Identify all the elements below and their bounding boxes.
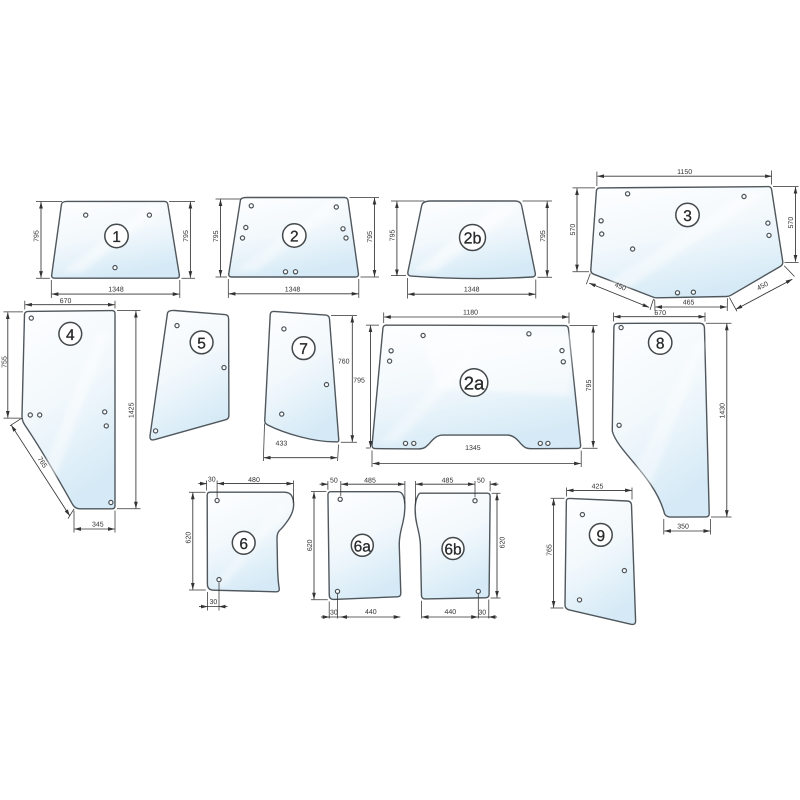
svg-text:50: 50 (330, 477, 338, 484)
svg-text:1348: 1348 (464, 287, 480, 294)
svg-text:1180: 1180 (463, 309, 478, 316)
svg-text:795: 795 (586, 380, 593, 392)
svg-text:570: 570 (788, 217, 795, 229)
svg-text:620: 620 (307, 539, 314, 551)
svg-text:2a: 2a (464, 373, 485, 394)
svg-text:795: 795 (183, 230, 190, 242)
svg-text:6a: 6a (354, 538, 372, 555)
svg-text:1430: 1430 (720, 403, 727, 419)
svg-text:795: 795 (353, 377, 365, 384)
svg-text:433: 433 (276, 441, 288, 448)
svg-text:6: 6 (239, 536, 248, 553)
svg-text:30: 30 (210, 599, 218, 606)
svg-text:1345: 1345 (465, 445, 481, 452)
svg-text:450: 450 (756, 281, 770, 293)
svg-text:620: 620 (499, 537, 506, 549)
svg-text:345: 345 (92, 522, 104, 529)
svg-text:485: 485 (364, 477, 376, 484)
svg-text:50: 50 (477, 477, 485, 484)
svg-text:1425: 1425 (129, 402, 136, 418)
svg-text:9: 9 (596, 528, 605, 545)
svg-text:465: 465 (683, 300, 695, 307)
svg-text:570: 570 (570, 224, 577, 236)
svg-text:425: 425 (592, 484, 604, 491)
svg-text:1150: 1150 (677, 169, 692, 176)
svg-text:755: 755 (2, 356, 9, 368)
svg-text:2b: 2b (464, 231, 482, 248)
svg-text:795: 795 (367, 231, 374, 243)
svg-text:5: 5 (197, 335, 206, 352)
svg-text:795: 795 (540, 230, 547, 242)
svg-text:440: 440 (365, 609, 377, 616)
svg-text:30: 30 (208, 477, 216, 484)
svg-text:1348: 1348 (108, 287, 124, 294)
svg-text:30: 30 (330, 610, 338, 617)
svg-text:795: 795 (213, 230, 220, 242)
svg-text:7: 7 (299, 341, 308, 358)
svg-text:760: 760 (338, 359, 350, 366)
svg-text:440: 440 (444, 609, 456, 616)
svg-text:1: 1 (112, 229, 121, 246)
svg-text:670: 670 (60, 298, 72, 305)
svg-text:765: 765 (546, 544, 553, 556)
svg-text:485: 485 (442, 477, 454, 484)
svg-text:620: 620 (186, 532, 193, 544)
svg-text:795: 795 (390, 229, 397, 241)
svg-text:8: 8 (656, 336, 665, 353)
svg-text:670: 670 (654, 310, 666, 317)
svg-text:2: 2 (290, 229, 299, 246)
svg-text:4: 4 (66, 327, 75, 344)
svg-text:795: 795 (34, 230, 41, 242)
svg-text:1348: 1348 (285, 286, 301, 293)
svg-text:6b: 6b (444, 542, 461, 559)
svg-text:30: 30 (478, 610, 486, 617)
svg-text:350: 350 (677, 524, 689, 531)
svg-text:3: 3 (683, 208, 692, 225)
svg-text:480: 480 (248, 477, 260, 484)
